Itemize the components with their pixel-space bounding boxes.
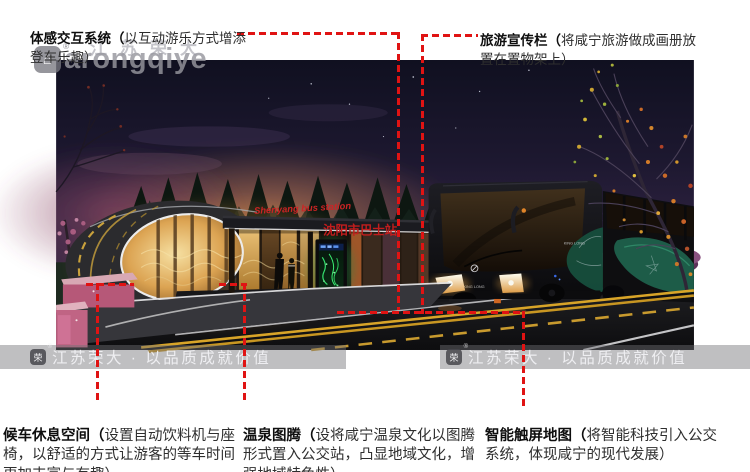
bus-brand-side: KING LONG — [564, 242, 585, 246]
watermark-bar-right: 荣® 江苏荣大 · 以品质成就价值 — [440, 345, 750, 369]
callout-line-somatosensory-v — [397, 32, 400, 310]
label-smart-touchmap: 智能触屏地图（将智能科技引入公交 系统，体现咸宁的现代发展） — [485, 407, 723, 466]
label-somatosensory-system: 体感交互系统（以互动游乐方式增添 登车乐趣） — [30, 10, 252, 67]
callout-line-tourism-h — [421, 34, 478, 37]
watermark-bar-text: 江苏荣大 · 以品质成就价值 — [468, 346, 687, 368]
label-tourism-board: 旅游宣传栏（将咸宁旅游做成画册放 置在置物架上） — [480, 12, 704, 69]
watermark-bar-text: 江苏荣大 · 以品质成就价值 — [52, 346, 271, 368]
presentation-slide: Shenyang bus station 沈阳市巴士站 — [0, 0, 750, 472]
callout-line-waiting-v — [96, 283, 99, 402]
callout-line-somatosensory-h — [237, 32, 400, 35]
callout-line-touchmap-h — [337, 311, 525, 314]
callout-line-totem-v — [243, 283, 246, 403]
watermark-logo-icon: 荣® — [446, 349, 462, 365]
callout-line-touchmap-v — [522, 311, 525, 410]
station-sign-chinese: 沈阳市巴士站 — [323, 222, 398, 237]
callout-line-waiting-h — [86, 283, 134, 286]
label-hotspring-totem: 温泉图腾（设将咸宁温泉文化以图腾 形式置入公交站，凸显地域文化，增 强地域特色性… — [243, 407, 481, 472]
watermark-bar-left: 荣® 江苏荣大 · 以品质成就价值 — [0, 345, 346, 369]
callout-line-tourism-v — [421, 34, 424, 314]
label-waiting-lounge: 候车休息空间（设置自动饮料机与座 椅，以舒适的方式让游客的等车时间 更加丰富与有… — [3, 407, 241, 472]
watermark-logo-icon: 荣® — [30, 349, 46, 365]
